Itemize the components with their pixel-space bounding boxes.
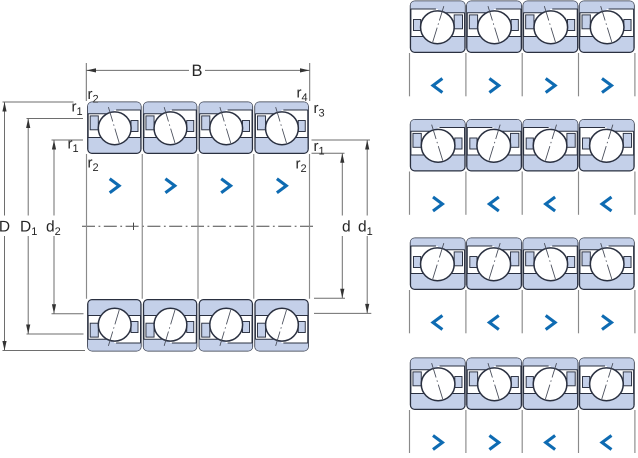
svg-text:B: B: [191, 62, 202, 80]
svg-text:d: d: [342, 219, 351, 236]
svg-text:D: D: [0, 219, 10, 236]
